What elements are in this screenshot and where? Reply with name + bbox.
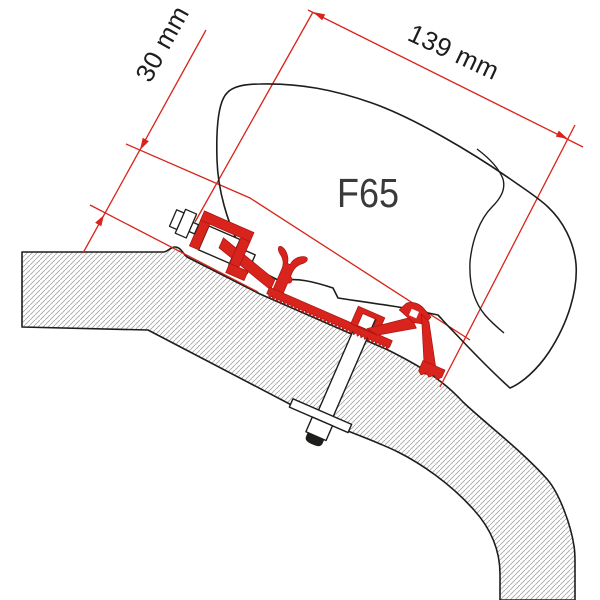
dim-139mm-label: 139 mm xyxy=(404,18,505,86)
awning-adapter-cross-section-diagram: 30 mm 139 mm F65 xyxy=(0,0,600,600)
arrow-139mm-right xyxy=(556,131,568,139)
dim-139mm-left-extension xyxy=(195,12,313,222)
dim-30mm-label: 30 mm xyxy=(129,1,195,87)
case-inner-step-contour xyxy=(470,149,504,333)
diagram-labels: 30 mm 139 mm F65 xyxy=(129,1,504,216)
arrow-30mm-lower xyxy=(95,215,104,226)
dim-139mm-right-extension xyxy=(440,125,575,387)
product-model-label: F65 xyxy=(337,170,399,216)
arrow-30mm-upper xyxy=(140,138,149,150)
diagram-page: 30 mm 139 mm F65 xyxy=(0,0,600,600)
arrow-139mm-left xyxy=(313,12,325,20)
